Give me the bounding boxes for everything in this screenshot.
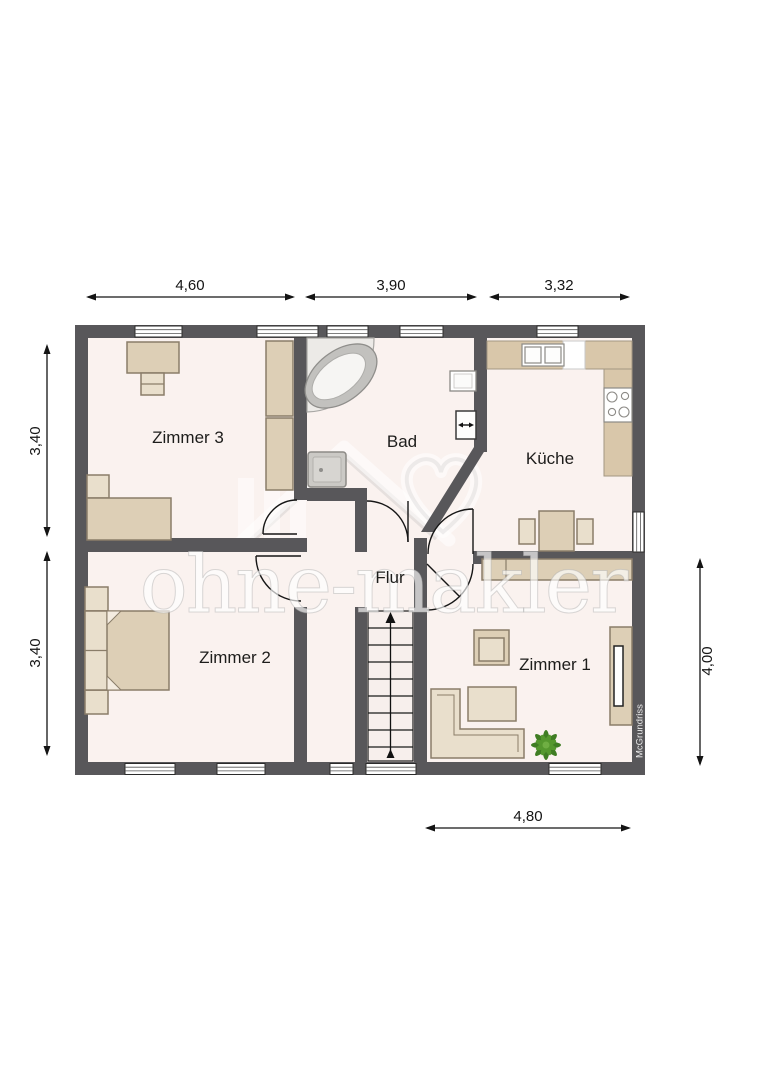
svg-text:4,60: 4,60: [175, 277, 204, 294]
coffee-table-icon: [468, 687, 516, 721]
window-icon: [549, 764, 601, 775]
room-label-zimmer-3: Zimmer 3: [152, 428, 224, 447]
svg-text:4,80: 4,80: [513, 808, 542, 825]
plant-icon: [531, 730, 561, 760]
armchair-icon: [474, 630, 509, 665]
svg-text:4,00: 4,00: [699, 646, 716, 675]
svg-text:3,40: 3,40: [27, 638, 44, 667]
svg-text:3,40: 3,40: [27, 426, 44, 455]
room-label-zimmer-1: Zimmer 1: [519, 655, 591, 674]
svg-text:3,32: 3,32: [544, 277, 573, 294]
room-label-kueche: Küche: [526, 449, 574, 468]
stairs-icon: [368, 611, 413, 761]
nightstand-icon: [85, 587, 108, 611]
nightstand-icon: [85, 690, 108, 714]
dimension-top-2: 3,90: [305, 277, 477, 301]
washbasin-icon: [450, 371, 476, 391]
dimension-top-1: 4,60: [86, 277, 295, 301]
room-label-flur: Flur: [375, 568, 405, 587]
shower-icon: [308, 452, 346, 487]
dimension-bottom-1: 4,80: [425, 808, 631, 832]
desk-icon: [127, 342, 179, 373]
desk-chair-icon: [141, 373, 164, 395]
dimension-left-1: 3,40: [27, 344, 51, 537]
window-icon: [633, 512, 644, 552]
room-label-zimmer-2: Zimmer 2: [199, 648, 271, 667]
wardrobe-icon: [266, 341, 293, 490]
window-icon: [537, 326, 578, 337]
tv-lowboard-icon: [610, 627, 632, 725]
window-icon: [400, 326, 443, 337]
dimension-left-2: 3,40: [27, 551, 51, 756]
room-label-bad: Bad: [387, 432, 417, 451]
window-icon: [135, 326, 182, 337]
dimension-top-3: 3,32: [489, 277, 630, 301]
wc-icon: [456, 411, 476, 439]
window-icon: [257, 326, 318, 337]
window-icon: [330, 764, 353, 775]
stove-icon: [604, 388, 632, 422]
svg-text:3,90: 3,90: [376, 277, 405, 294]
floorplan-canvas: ohne-makler Zimmer 3 Bad Küche Flur Zimm…: [0, 0, 764, 1080]
window-icon: [217, 764, 265, 775]
credit-text: McGrundriss: [635, 704, 646, 758]
kitchen-sink-icon: [522, 344, 564, 366]
window-icon: [366, 764, 416, 775]
dimension-right-1: 4,00: [697, 558, 717, 766]
window-icon: [327, 326, 368, 337]
window-icon: [125, 764, 175, 775]
